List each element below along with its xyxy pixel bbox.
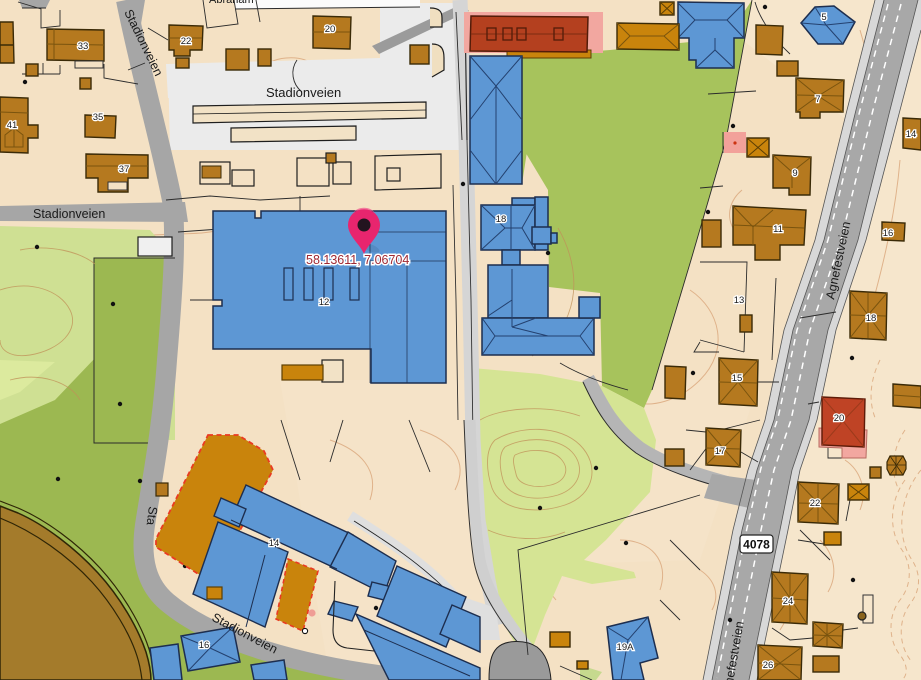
svg-text:16: 16 <box>883 228 894 239</box>
svg-text:20: 20 <box>325 24 336 35</box>
svg-text:58.13611, 7.06704: 58.13611, 7.06704 <box>306 253 409 267</box>
svg-text:17: 17 <box>715 446 726 457</box>
svg-text:24: 24 <box>783 596 794 607</box>
svg-text:13: 13 <box>734 295 745 306</box>
svg-text:4078: 4078 <box>743 538 770 552</box>
svg-text:9: 9 <box>792 168 797 179</box>
svg-text:18: 18 <box>496 214 507 225</box>
svg-text:35: 35 <box>93 112 104 123</box>
svg-text:22: 22 <box>181 36 192 47</box>
svg-text:16: 16 <box>199 640 210 651</box>
svg-text:19A: 19A <box>617 642 635 653</box>
svg-text:7: 7 <box>815 94 820 105</box>
svg-text:Stadionveien: Stadionveien <box>266 85 341 100</box>
svg-text:14: 14 <box>269 538 280 549</box>
svg-text:22: 22 <box>810 498 821 509</box>
svg-text:5: 5 <box>821 12 826 23</box>
svg-text:Abraham: Abraham <box>209 0 254 6</box>
svg-text:Stadionveien: Stadionveien <box>33 207 105 221</box>
svg-text:12: 12 <box>319 297 330 308</box>
svg-text:37: 37 <box>119 164 130 175</box>
svg-text:20: 20 <box>834 413 845 424</box>
svg-text:11: 11 <box>773 224 783 235</box>
svg-text:33: 33 <box>78 41 89 52</box>
svg-text:15: 15 <box>732 373 743 384</box>
svg-text:14: 14 <box>906 129 917 140</box>
svg-text:Sta: Sta <box>144 506 160 526</box>
svg-text:18: 18 <box>866 313 877 324</box>
svg-text:41: 41 <box>7 120 18 131</box>
svg-text:26: 26 <box>763 660 774 671</box>
